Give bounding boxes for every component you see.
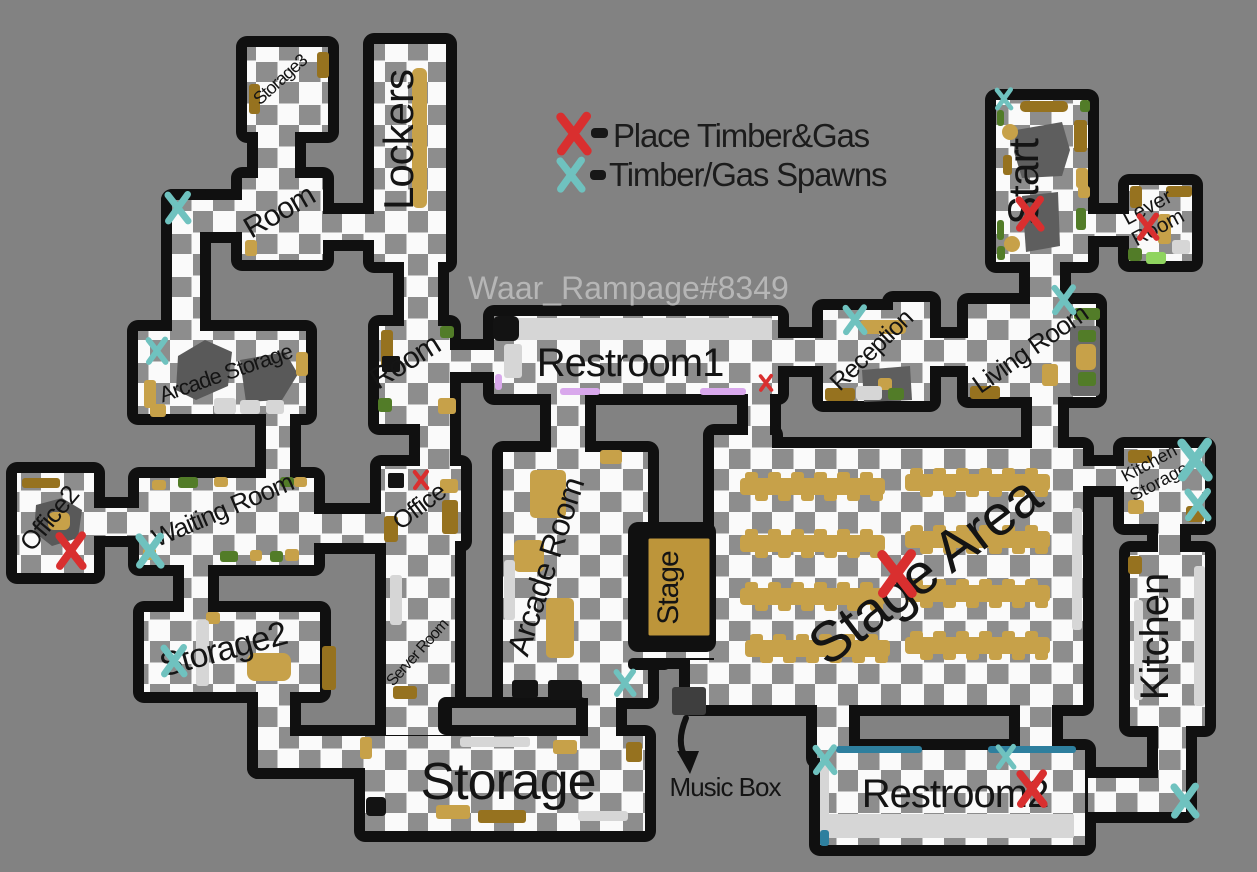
svg-text:Lockers: Lockers bbox=[375, 70, 422, 210]
svg-text:Timber/Gas Spawns: Timber/Gas Spawns bbox=[609, 156, 887, 193]
svg-text:Storage: Storage bbox=[420, 753, 595, 811]
svg-text:Stage: Stage bbox=[652, 551, 685, 625]
svg-text:Restroom1: Restroom1 bbox=[537, 341, 724, 385]
svg-text:Place Timber&Gas: Place Timber&Gas bbox=[613, 117, 870, 154]
svg-text:Kitchen: Kitchen bbox=[1133, 574, 1177, 700]
svg-text:Music Box: Music Box bbox=[670, 772, 782, 802]
svg-text:Waar_Rampage#8349: Waar_Rampage#8349 bbox=[468, 270, 789, 306]
